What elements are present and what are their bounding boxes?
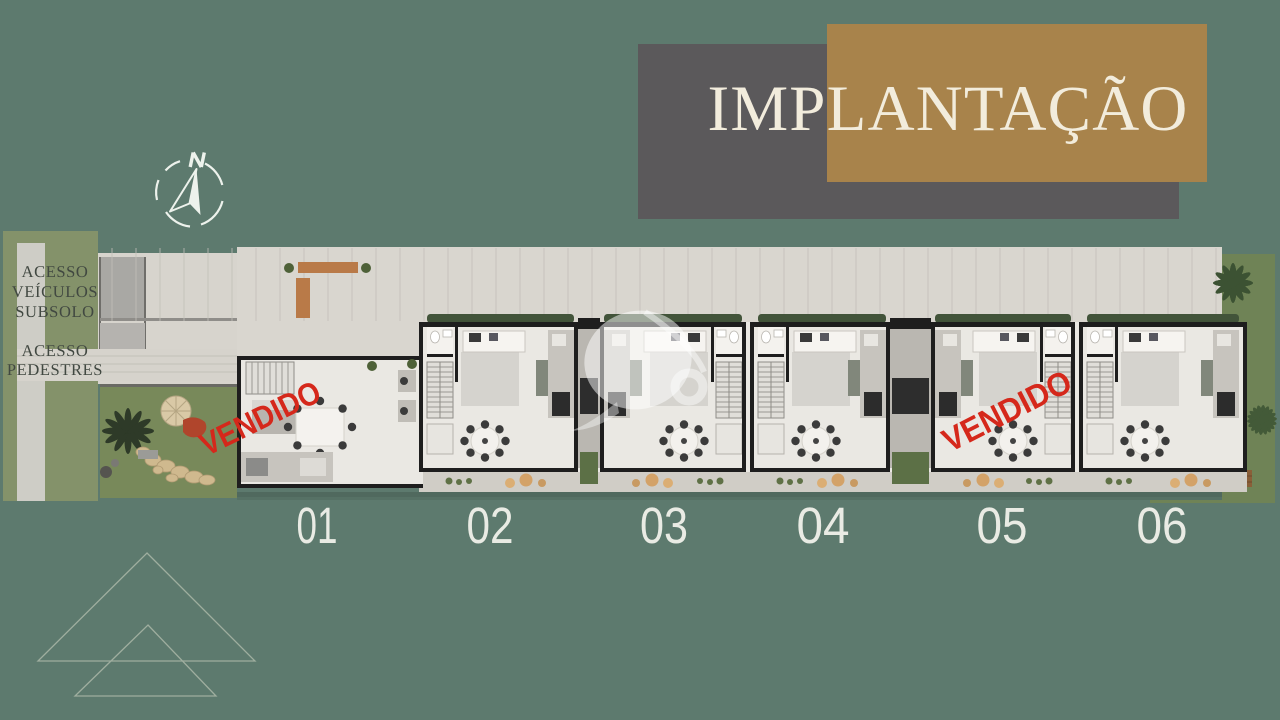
svg-text:PEDESTRES: PEDESTRES	[7, 360, 103, 379]
svg-text:02: 02	[467, 497, 514, 554]
svg-text:ACESSO: ACESSO	[22, 262, 89, 281]
svg-text:04: 04	[797, 497, 850, 554]
svg-text:05: 05	[977, 497, 1028, 554]
svg-text:IMPLANTAÇÃO: IMPLANTAÇÃO	[707, 73, 1188, 145]
svg-text:01: 01	[297, 497, 338, 554]
svg-text:03: 03	[640, 497, 688, 554]
svg-text:06: 06	[1137, 497, 1188, 554]
svg-text:ACESSO: ACESSO	[22, 341, 89, 360]
svg-text:SUBSOLO: SUBSOLO	[15, 302, 94, 321]
svg-text:VEÍCULOS: VEÍCULOS	[12, 282, 98, 301]
